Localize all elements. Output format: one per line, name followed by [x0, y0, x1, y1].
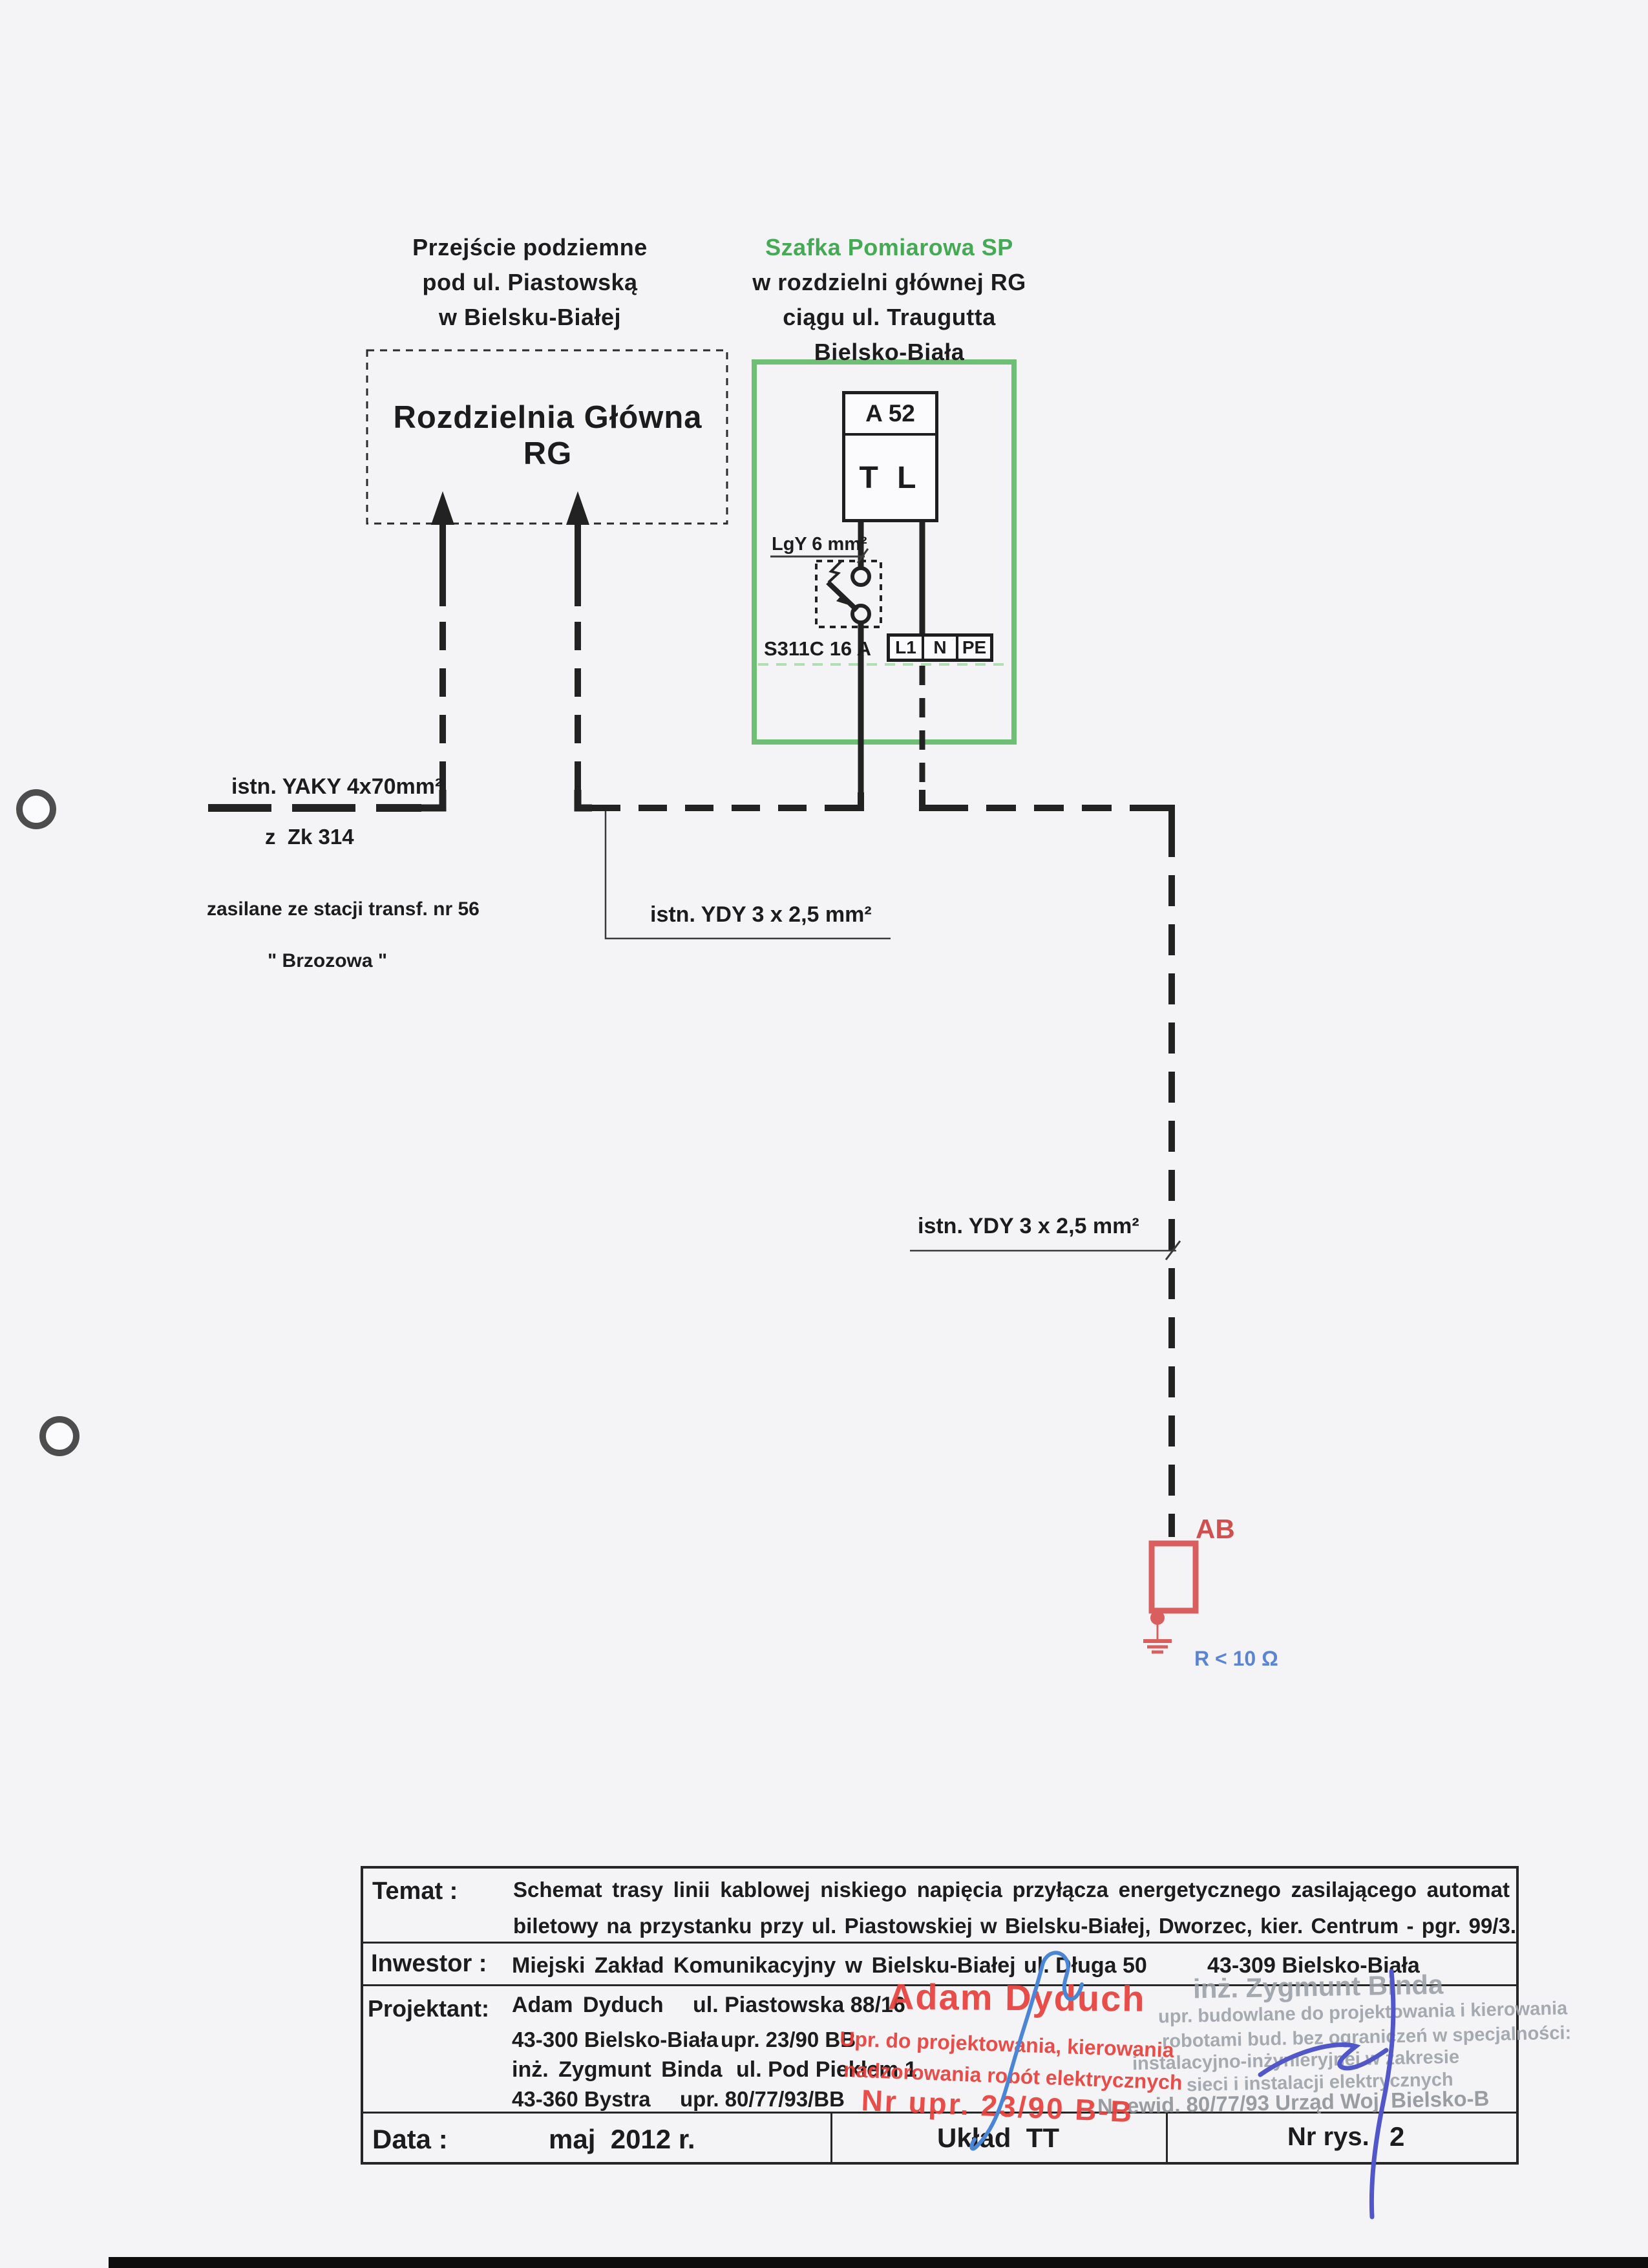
meter-box: A 52 T L [842, 391, 938, 522]
terminal-l1: L1 [890, 637, 922, 659]
projektant-r2-city: 43-300 Bielsko-Biała [512, 2028, 718, 2052]
data-value: maj 2012 r. [549, 2124, 695, 2155]
right-arrowhead [566, 491, 589, 525]
header-right-line3: ciągu ul. Traugutta [741, 300, 1038, 335]
meter-box-id: A 52 [845, 394, 935, 436]
sp-output-elbow [922, 790, 938, 808]
ab-device-label: AB [1196, 1514, 1235, 1545]
red-stamp-name: Adam Dyduch [888, 1975, 1146, 2019]
breaker-symbol [816, 561, 881, 627]
data-label: Data : [372, 2124, 448, 2155]
sp-input-elbow [839, 792, 861, 808]
projektant-label: Projektant: [368, 1995, 489, 2022]
title-block-col-divider-2 [1166, 2114, 1168, 2165]
punch-hole-bottom [43, 1419, 76, 1453]
header-right-line1: Szafka Pomiarowa SP [741, 230, 1038, 265]
ydy-label-2: istn. YDY 3 x 2,5 mm² [918, 1214, 1139, 1239]
terminal-n: N [922, 637, 956, 659]
projektant-r1-addr: ul. Piastowska 88/16 [693, 1993, 905, 2018]
projektant-r3-name: inż. Zygmunt Binda [512, 2057, 723, 2083]
lgy-wire-label: LgY 6 mm² [772, 534, 867, 555]
projektant-r2-upr: upr. 23/90 BB [721, 2028, 856, 2052]
terminal-pe: PE [956, 637, 990, 659]
ydy-label-1: istn. YDY 3 x 2,5 mm² [650, 902, 872, 927]
ab-box [1152, 1543, 1196, 1611]
yaky-label-line3: zasilane ze stacji transf. nr 56 [207, 898, 480, 920]
ab-device-symbol [1143, 1543, 1196, 1652]
nr-rys-label: Nr rys. [1287, 2123, 1369, 2152]
cable-runs [208, 521, 1172, 1537]
left-arrowhead [431, 491, 454, 525]
ab-earth-node [1150, 1611, 1165, 1625]
temat-line1: Schemat trasy linii kablowej niskiego na… [513, 1878, 1510, 1902]
right-arrow-elbow [578, 790, 592, 808]
inwestor-name: Miejski Zakład Komunikacyjny w Bielsku-B… [512, 1953, 1016, 1978]
breaker-contact-top [852, 568, 869, 585]
yaky-label-line2: z Zk 314 [265, 825, 354, 849]
header-right-line4: Bielsko-Biała [741, 335, 1038, 370]
nr-rys-value: 2 [1389, 2121, 1404, 2152]
yaky-label-line1: istn. YAKY 4x70mm² [231, 774, 442, 800]
inwestor-street: ul. Długa 50 [1024, 1953, 1147, 1978]
temat-label: Temat : [372, 1878, 458, 1905]
rg-box-title: Rozdzielnia Główna RG [372, 399, 724, 472]
breaker-dashed-box [816, 561, 881, 627]
yaky-label-line4: " Brzozowa " [268, 950, 387, 972]
header-left: Przejście podziemne pod ul. Piastowską w… [388, 230, 672, 335]
header-left-line2: pod ul. Piastowską [388, 265, 672, 300]
terminal-strip: L1 N PE [887, 633, 993, 662]
gray-stamp-name: inż. Zygmunt Binda [1193, 1969, 1444, 2005]
breaker-type-label: S311C 16 A [764, 637, 871, 661]
meter-box-device: T L [845, 436, 935, 520]
header-right-line2: w rozdzielni głównej RG [741, 265, 1038, 300]
temat-line2: biletowy na przystanku przy ul. Piastows… [513, 1914, 1516, 1938]
punch-hole-top [19, 792, 53, 826]
title-block-row-divider-1 [363, 1942, 1516, 1944]
ab-run-elbow [1148, 808, 1172, 826]
scan-bottom-edge [109, 2257, 1648, 2268]
header-left-line3: w Bielsku-Białej [388, 300, 672, 335]
projektant-r4-city: 43-360 Bystra [512, 2087, 651, 2112]
breaker-trip-zigzag [829, 562, 841, 582]
projektant-r4-upr: upr. 80/77/93/BB [680, 2087, 845, 2112]
header-right: Szafka Pomiarowa SP w rozdzielni głównej… [741, 230, 1038, 370]
header-left-line1: Przejście podziemne [388, 230, 672, 265]
inwestor-label: Inwestor : [371, 1950, 487, 1978]
projektant-r1-name: Adam Dyduch [512, 1993, 664, 2018]
earth-resistance-label: R < 10 Ω [1194, 1647, 1278, 1671]
scanned-schematic-page: Przejście podziemne pod ul. Piastowską w… [0, 0, 1648, 2268]
